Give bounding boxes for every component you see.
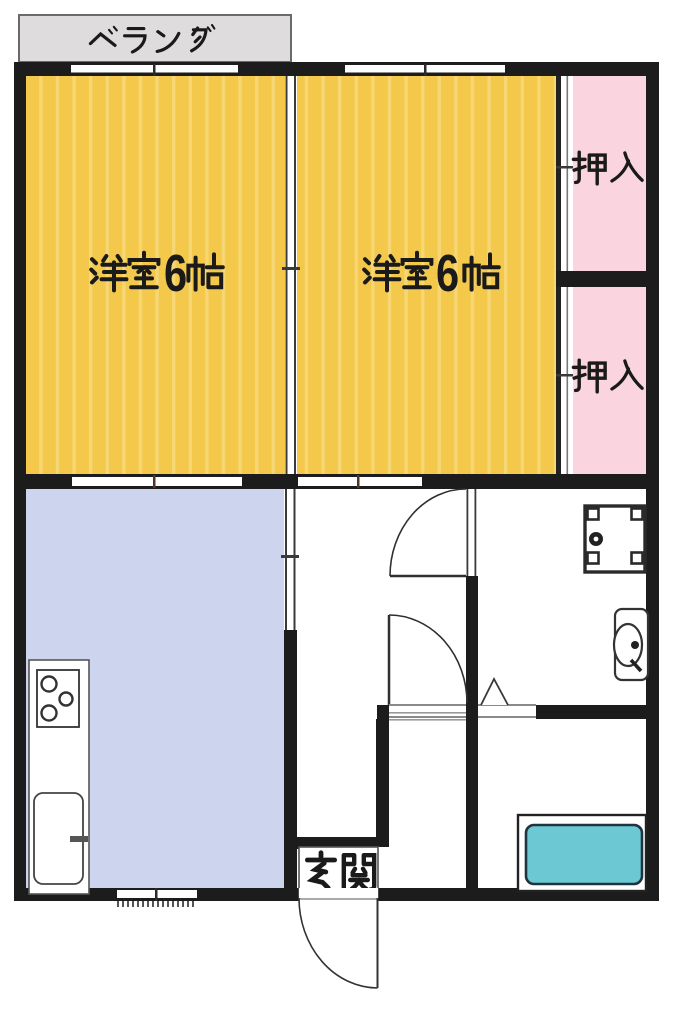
svg-text:6: 6	[436, 244, 459, 303]
svg-text:6: 6	[164, 244, 187, 303]
